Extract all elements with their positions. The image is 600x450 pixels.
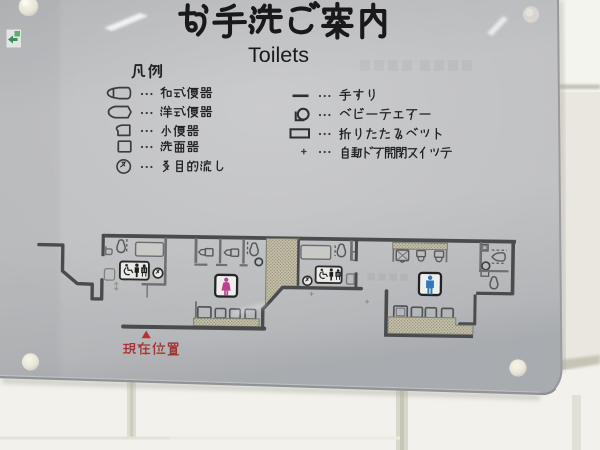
svg-text:Toilets: Toilets [248,43,309,67]
